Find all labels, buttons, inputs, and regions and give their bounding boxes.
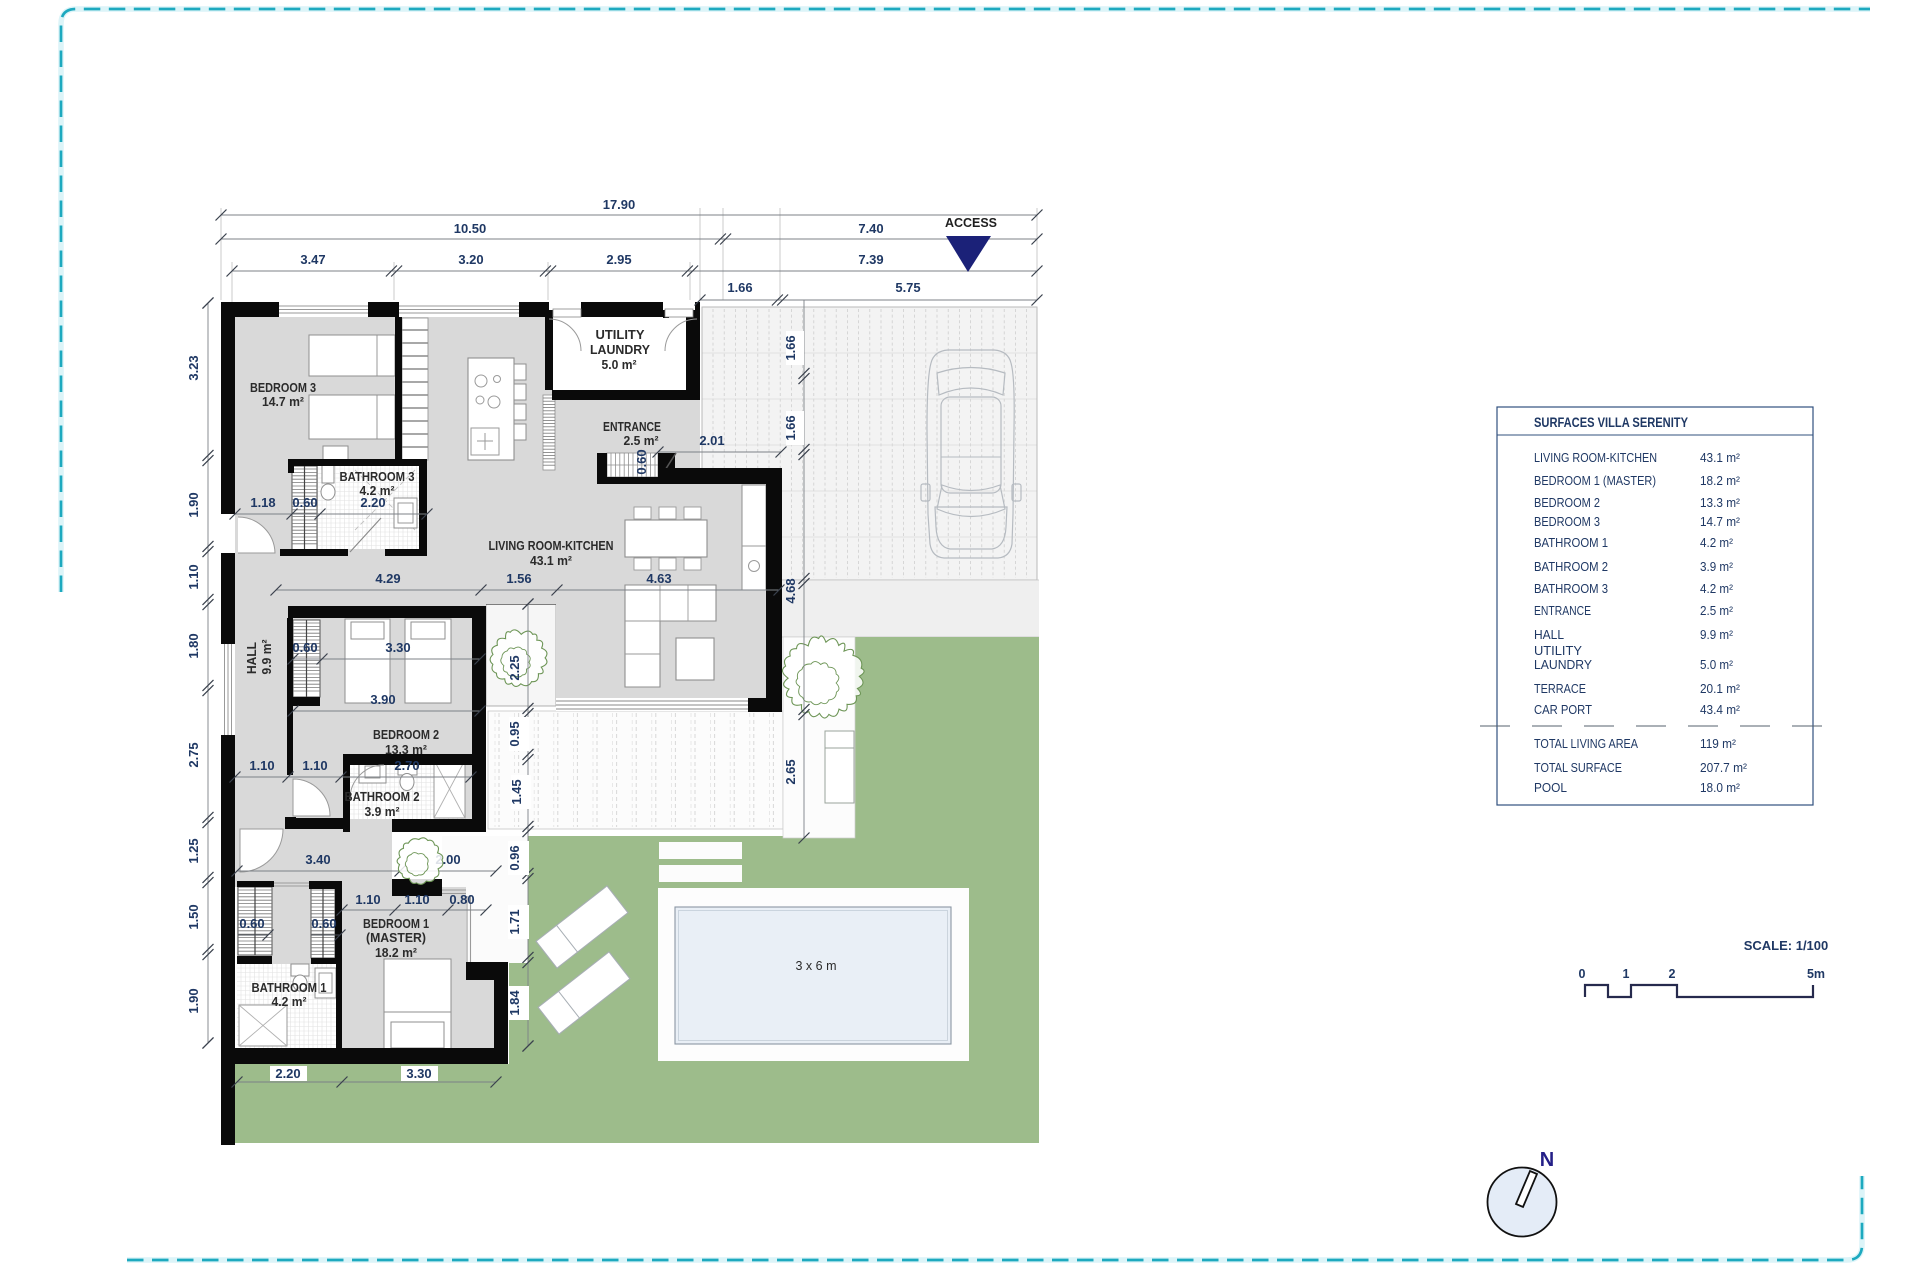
svg-text:3.90: 3.90 bbox=[370, 692, 395, 707]
svg-text:3.47: 3.47 bbox=[300, 252, 325, 267]
svg-text:HALL: HALL bbox=[245, 642, 259, 674]
svg-text:0.60: 0.60 bbox=[239, 916, 264, 931]
svg-text:HALL: HALL bbox=[1534, 628, 1564, 642]
svg-text:1.80: 1.80 bbox=[186, 633, 201, 658]
svg-text:3.23: 3.23 bbox=[186, 355, 201, 380]
svg-text:1.66: 1.66 bbox=[783, 335, 798, 360]
svg-text:BATHROOM 2: BATHROOM 2 bbox=[1534, 560, 1608, 574]
svg-text:BEDROOM 3: BEDROOM 3 bbox=[1534, 515, 1600, 529]
svg-text:1.66: 1.66 bbox=[783, 415, 798, 440]
svg-text:14.7 m²: 14.7 m² bbox=[1700, 515, 1740, 529]
svg-text:CAR PORT: CAR PORT bbox=[1534, 703, 1592, 717]
svg-text:BATHROOM 3: BATHROOM 3 bbox=[1534, 582, 1608, 596]
svg-text:1.10: 1.10 bbox=[186, 564, 201, 589]
svg-text:7.39: 7.39 bbox=[858, 252, 883, 267]
svg-text:3.30: 3.30 bbox=[385, 640, 410, 655]
svg-text:18.2 m²: 18.2 m² bbox=[375, 946, 417, 960]
svg-text:5m: 5m bbox=[1807, 967, 1825, 981]
svg-text:5.75: 5.75 bbox=[895, 280, 920, 295]
svg-text:SCALE: 1/100: SCALE: 1/100 bbox=[1744, 938, 1829, 953]
svg-text:10.50: 10.50 bbox=[454, 221, 487, 236]
svg-text:119 m²: 119 m² bbox=[1700, 737, 1736, 751]
svg-text:3.9 m²: 3.9 m² bbox=[1700, 560, 1733, 574]
svg-text:4.68: 4.68 bbox=[783, 578, 798, 603]
svg-text:2.75: 2.75 bbox=[186, 742, 201, 767]
svg-text:LAUNDRY: LAUNDRY bbox=[1534, 658, 1593, 672]
svg-text:BATHROOM 3: BATHROOM 3 bbox=[340, 470, 415, 484]
svg-text:1.10: 1.10 bbox=[302, 758, 327, 773]
svg-text:BATHROOM 1: BATHROOM 1 bbox=[1534, 536, 1608, 550]
svg-text:2.01: 2.01 bbox=[699, 433, 724, 448]
svg-text:LAUNDRY: LAUNDRY bbox=[590, 343, 651, 357]
svg-text:17.90: 17.90 bbox=[603, 197, 636, 212]
svg-text:1.90: 1.90 bbox=[186, 988, 201, 1013]
svg-text:BEDROOM 2: BEDROOM 2 bbox=[373, 728, 439, 742]
svg-text:ENTRANCE: ENTRANCE bbox=[1534, 604, 1591, 618]
svg-text:3.30: 3.30 bbox=[406, 1066, 431, 1081]
svg-text:TOTAL SURFACE: TOTAL SURFACE bbox=[1534, 761, 1622, 775]
svg-text:9.9 m²: 9.9 m² bbox=[260, 640, 274, 675]
svg-text:2.25: 2.25 bbox=[507, 655, 522, 680]
svg-text:SURFACES VILLA SERENITY: SURFACES VILLA SERENITY bbox=[1534, 414, 1689, 430]
svg-text:4.2 m²: 4.2 m² bbox=[1700, 536, 1733, 550]
svg-text:UTILITY: UTILITY bbox=[596, 328, 646, 342]
svg-text:0.60: 0.60 bbox=[292, 640, 317, 655]
svg-text:1.66: 1.66 bbox=[727, 280, 752, 295]
svg-text:2.20: 2.20 bbox=[275, 1066, 300, 1081]
svg-text:1.90: 1.90 bbox=[186, 492, 201, 517]
svg-text:2.65: 2.65 bbox=[783, 759, 798, 784]
svg-text:4.2 m²: 4.2 m² bbox=[272, 995, 307, 1009]
svg-text:43.4 m²: 43.4 m² bbox=[1700, 703, 1740, 717]
svg-text:TERRACE: TERRACE bbox=[1534, 682, 1586, 696]
svg-text:1.10: 1.10 bbox=[404, 892, 429, 907]
svg-text:4.63: 4.63 bbox=[646, 571, 671, 586]
svg-text:BEDROOM 1 (MASTER): BEDROOM 1 (MASTER) bbox=[1534, 474, 1656, 488]
svg-text:14.7 m²: 14.7 m² bbox=[262, 395, 304, 409]
svg-text:3.9 m²: 3.9 m² bbox=[365, 805, 400, 819]
svg-text:2: 2 bbox=[1669, 967, 1676, 981]
svg-text:1.71: 1.71 bbox=[507, 909, 522, 934]
svg-text:7.40: 7.40 bbox=[858, 221, 883, 236]
svg-text:0.80: 0.80 bbox=[449, 892, 474, 907]
svg-text:BEDROOM 1: BEDROOM 1 bbox=[363, 917, 429, 931]
svg-text:BEDROOM 2: BEDROOM 2 bbox=[1534, 496, 1600, 510]
svg-text:43.1 m²: 43.1 m² bbox=[1700, 451, 1740, 465]
svg-text:BATHROOM 2: BATHROOM 2 bbox=[345, 790, 420, 804]
svg-text:9.9 m²: 9.9 m² bbox=[1700, 628, 1733, 642]
svg-text:18.0 m²: 18.0 m² bbox=[1700, 781, 1740, 795]
svg-text:1.25: 1.25 bbox=[186, 838, 201, 863]
svg-text:ENTRANCE: ENTRANCE bbox=[603, 420, 661, 434]
svg-text:207.7 m²: 207.7 m² bbox=[1700, 761, 1747, 775]
svg-text:2.5 m²: 2.5 m² bbox=[624, 434, 659, 448]
svg-text:0.95: 0.95 bbox=[507, 721, 522, 746]
svg-text:0.96: 0.96 bbox=[507, 845, 522, 870]
svg-text:0: 0 bbox=[1579, 967, 1586, 981]
svg-text:TOTAL LIVING AREA: TOTAL LIVING AREA bbox=[1534, 737, 1639, 751]
svg-text:1.45: 1.45 bbox=[509, 779, 524, 804]
svg-text:1.84: 1.84 bbox=[507, 990, 522, 1016]
svg-text:(MASTER): (MASTER) bbox=[366, 931, 426, 945]
svg-text:BEDROOM 3: BEDROOM 3 bbox=[250, 381, 316, 395]
svg-text:POOL: POOL bbox=[1534, 781, 1567, 795]
svg-text:2.70: 2.70 bbox=[394, 758, 419, 773]
svg-text:1.10: 1.10 bbox=[355, 892, 380, 907]
svg-text:20.1 m²: 20.1 m² bbox=[1700, 682, 1740, 696]
svg-text:5.0 m²: 5.0 m² bbox=[602, 358, 637, 372]
svg-text:5.0 m²: 5.0 m² bbox=[1700, 658, 1733, 672]
svg-text:3.40: 3.40 bbox=[305, 852, 330, 867]
svg-text:N: N bbox=[1540, 1149, 1554, 1171]
svg-text:1.56: 1.56 bbox=[506, 571, 531, 586]
svg-text:LIVING ROOM-KITCHEN: LIVING ROOM-KITCHEN bbox=[489, 539, 614, 553]
svg-text:2.20: 2.20 bbox=[360, 495, 385, 510]
svg-text:1.10: 1.10 bbox=[249, 758, 274, 773]
svg-text:4.29: 4.29 bbox=[375, 571, 400, 586]
svg-text:4.2 m²: 4.2 m² bbox=[1700, 582, 1733, 596]
svg-text:UTILITY: UTILITY bbox=[1534, 644, 1583, 658]
svg-text:LIVING ROOM-KITCHEN: LIVING ROOM-KITCHEN bbox=[1534, 451, 1657, 465]
svg-text:13.3 m²: 13.3 m² bbox=[1700, 496, 1740, 510]
svg-text:3 x 6 m: 3 x 6 m bbox=[796, 959, 837, 973]
svg-text:2.95: 2.95 bbox=[606, 252, 631, 267]
svg-text:43.1 m²: 43.1 m² bbox=[530, 554, 572, 568]
svg-text:0.60: 0.60 bbox=[634, 449, 649, 474]
svg-text:1.50: 1.50 bbox=[186, 904, 201, 929]
svg-text:1: 1 bbox=[1623, 967, 1630, 981]
svg-text:0.60: 0.60 bbox=[292, 495, 317, 510]
svg-text:0.60: 0.60 bbox=[311, 916, 336, 931]
svg-text:13.3 m²: 13.3 m² bbox=[385, 743, 427, 757]
svg-text:BATHROOM 1: BATHROOM 1 bbox=[252, 981, 327, 995]
svg-text:2.5 m²: 2.5 m² bbox=[1700, 604, 1733, 618]
svg-text:1.18: 1.18 bbox=[250, 495, 275, 510]
svg-text:ACCESS: ACCESS bbox=[945, 215, 997, 230]
svg-text:18.2 m²: 18.2 m² bbox=[1700, 474, 1740, 488]
svg-text:3.20: 3.20 bbox=[458, 252, 483, 267]
